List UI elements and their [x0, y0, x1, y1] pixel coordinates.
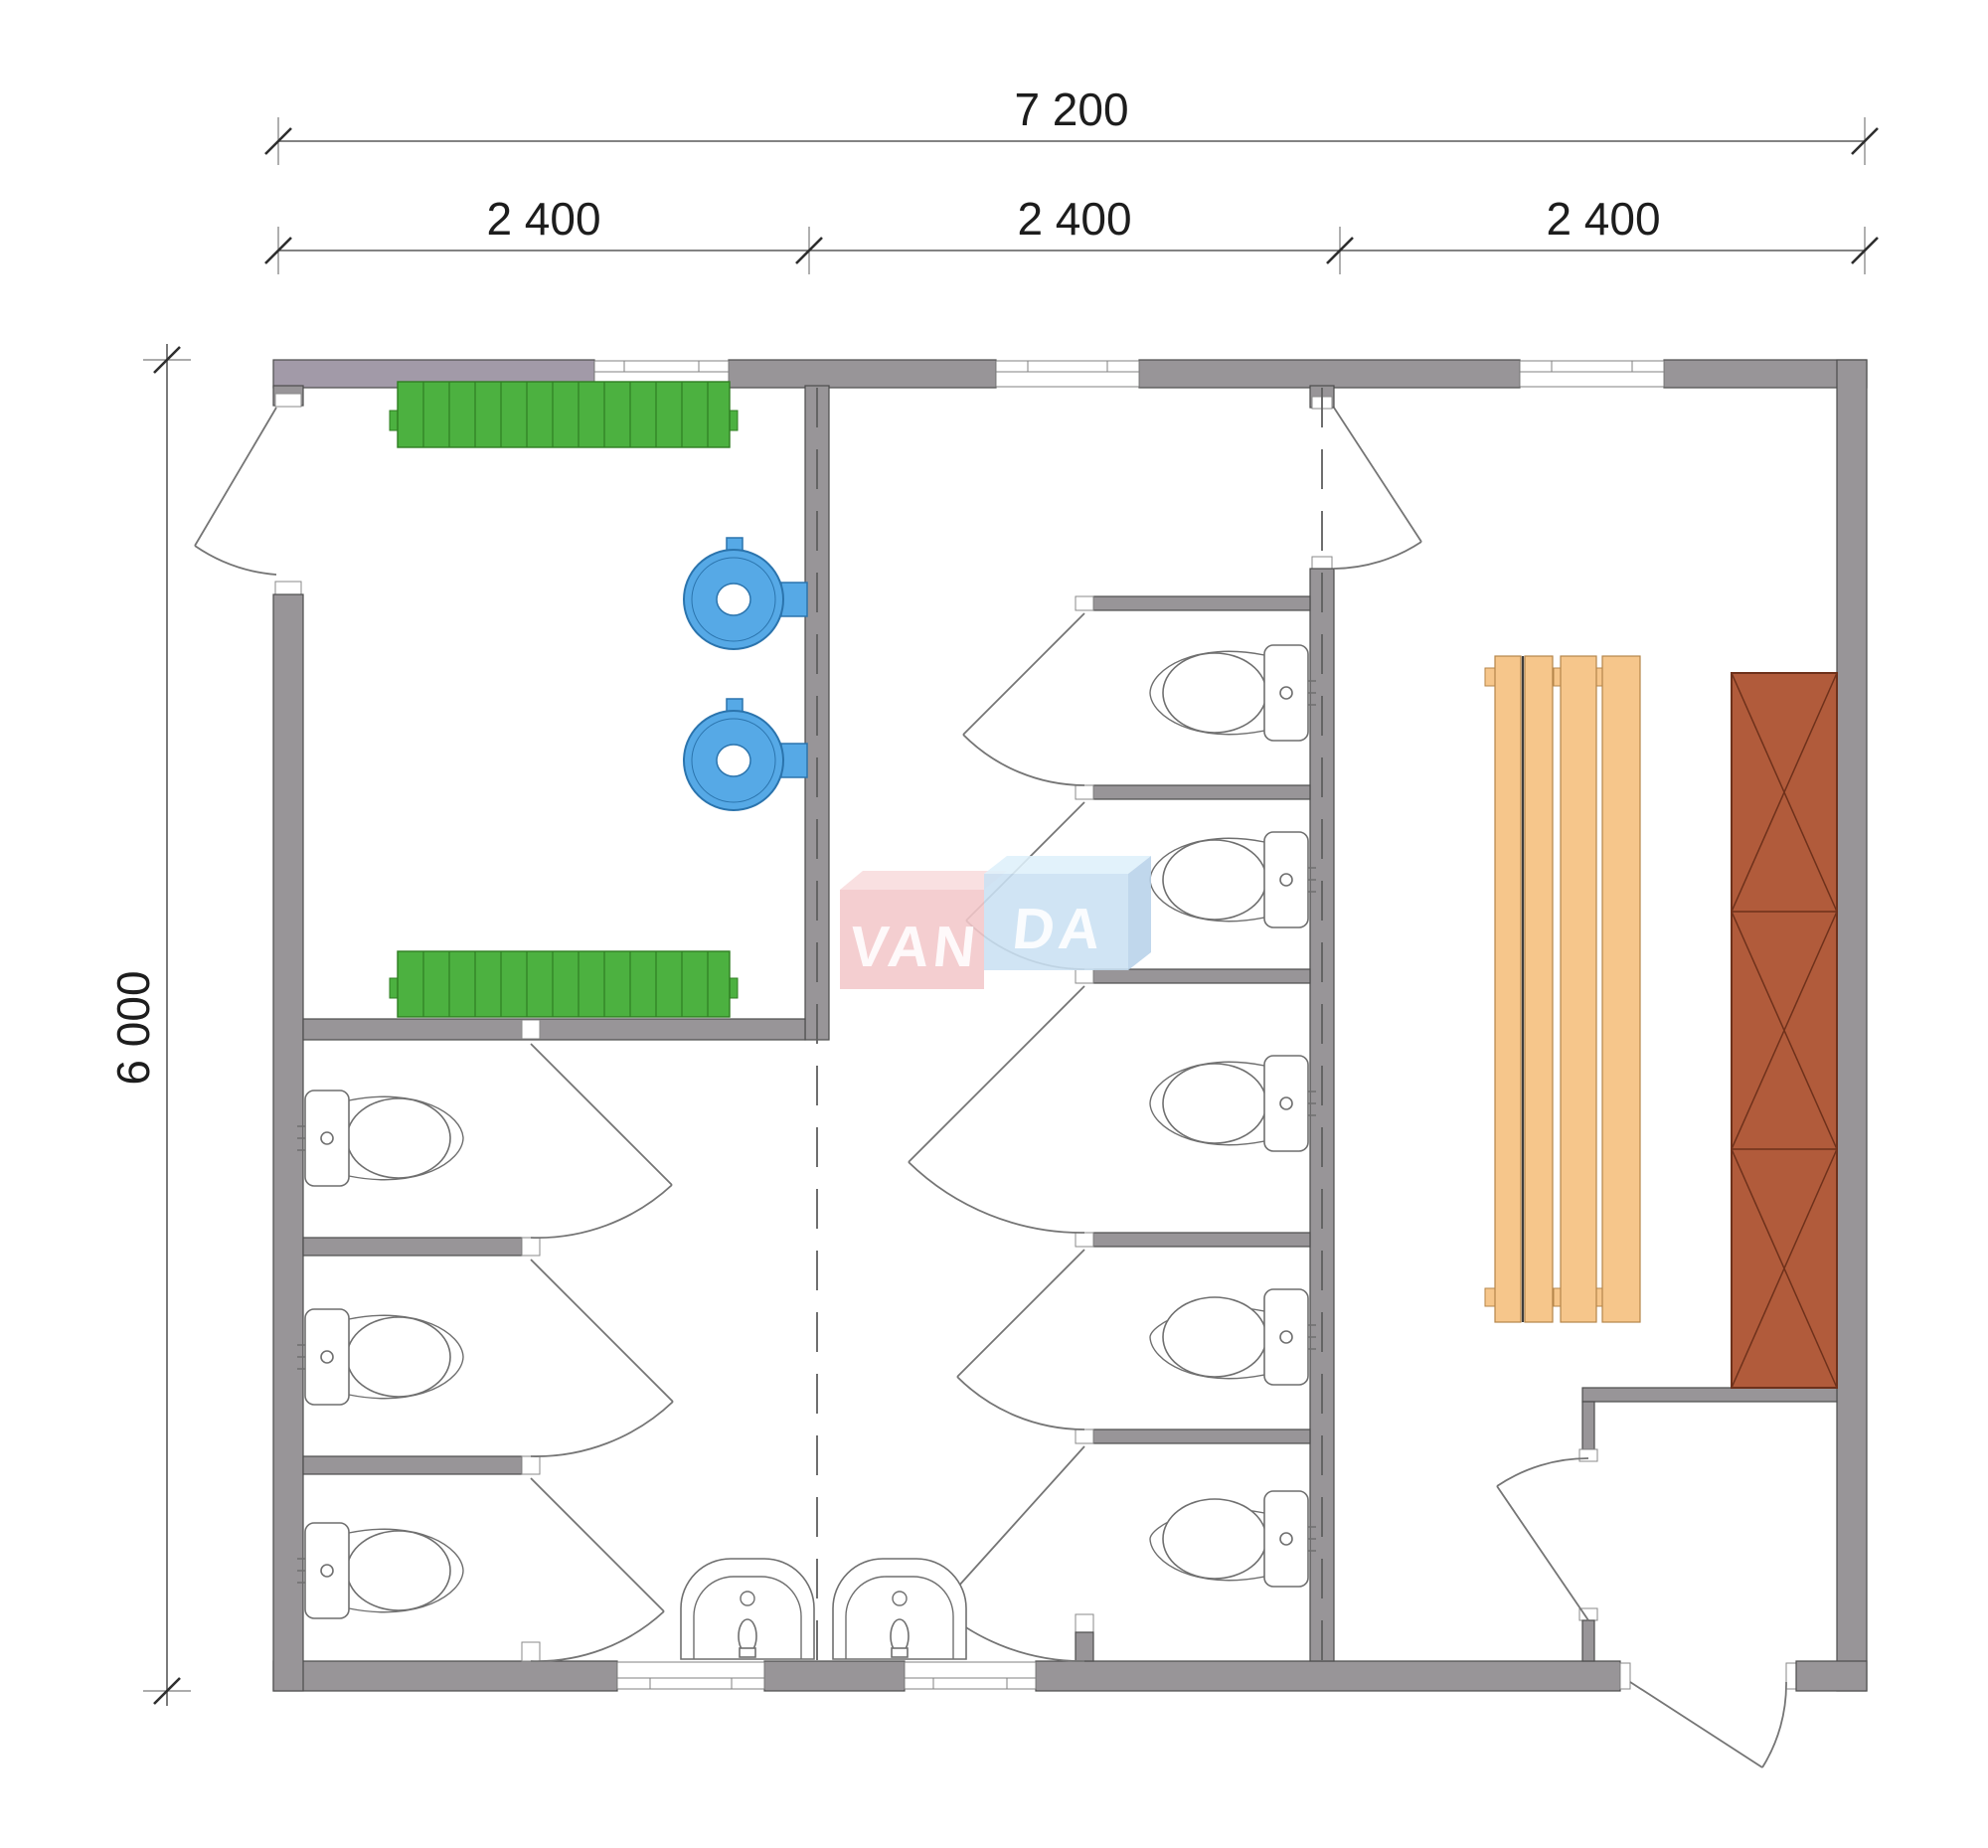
logo-blue-side-face [1128, 856, 1151, 970]
locker-cabinet [1732, 673, 1837, 1388]
stall-jamb [1076, 1233, 1093, 1247]
sink [833, 1559, 966, 1659]
door-vestibule [1497, 1458, 1588, 1620]
logo-text-left: VAN [847, 915, 983, 979]
window-top-right [1520, 361, 1664, 387]
stall-wall-stub [1076, 1632, 1093, 1661]
stall-wall [1093, 1233, 1310, 1247]
stall-door [957, 1250, 1084, 1429]
toilet [1150, 645, 1316, 741]
door-jamb [275, 582, 301, 594]
stall-door [531, 1260, 673, 1456]
door-jamb [275, 394, 301, 407]
stall-jamb [522, 1020, 540, 1039]
stall-jamb [522, 1238, 540, 1256]
stall-wall [1093, 785, 1310, 799]
stall-wall [303, 1238, 522, 1256]
dimension-label-total-width: 7 200 [1014, 84, 1128, 135]
stall-jamb [522, 1642, 540, 1661]
bottom-wall-segment [1796, 1661, 1867, 1691]
water-heater [684, 538, 807, 649]
dimension-label-segment-2: 2 400 [1017, 193, 1131, 245]
stall-door [963, 613, 1084, 785]
entrance-door-left [195, 408, 276, 575]
stall-door [909, 986, 1084, 1233]
toilet [1150, 1289, 1316, 1385]
toilet [1150, 1491, 1316, 1587]
vestibule-wall [1582, 1620, 1594, 1661]
toilet [297, 1523, 463, 1618]
stall-jamb [522, 1456, 540, 1474]
window-bottom-middle [905, 1662, 1036, 1689]
wood-bench [1485, 656, 1640, 1322]
vestibule-wall [1582, 1388, 1837, 1402]
left-wc-stalls [297, 1091, 463, 1618]
water-heater [684, 699, 807, 810]
right-changing-room [1485, 656, 1837, 1388]
toilet [1150, 1056, 1316, 1151]
floor-plan-page: 7 200 2 400 2 400 2 400 6 000 [0, 0, 1988, 1848]
bottom-wall-segment [273, 1661, 617, 1691]
window-bottom-left [617, 1662, 764, 1689]
stall-wall [1093, 1429, 1310, 1443]
stall-jamb [1076, 596, 1093, 610]
left-changing-room [390, 382, 807, 1017]
dimension-label-segment-3: 2 400 [1546, 193, 1660, 245]
stall-jamb [1076, 1429, 1093, 1443]
door-jamb [1579, 1449, 1597, 1461]
stall-door [531, 1044, 672, 1238]
toilet [1150, 832, 1316, 927]
stall-jamb [1076, 969, 1093, 983]
vestibule-wall [1582, 1402, 1594, 1449]
door-jamb [1786, 1663, 1796, 1689]
top-wall-segment [1139, 360, 1520, 388]
stall-wall [1093, 596, 1310, 610]
green-bench-top [390, 382, 738, 447]
bottom-wall-segment [1036, 1661, 1620, 1691]
logo-blue-top-face [984, 856, 1151, 874]
toilet [297, 1091, 463, 1186]
left-wall-segment [273, 594, 303, 1691]
door-jamb [1312, 557, 1332, 569]
sink [681, 1559, 814, 1659]
stall-jamb [1076, 785, 1093, 799]
stall-door [531, 1478, 664, 1661]
bottom-wall-segment [764, 1661, 905, 1691]
door-jamb [1620, 1663, 1630, 1689]
stall-wall [303, 1456, 522, 1474]
logo-text-right: DA [1010, 897, 1108, 961]
toilet [297, 1309, 463, 1405]
door-right-room [1334, 408, 1421, 569]
top-wall-segment [729, 360, 996, 388]
stall-wall [1093, 969, 1310, 983]
stall-jamb [1076, 1614, 1093, 1632]
dimension-label-total-height: 6 000 [107, 970, 159, 1085]
brand-watermark: VAN DA [840, 856, 1151, 989]
dimension-label-segment-1: 2 400 [486, 193, 600, 245]
left-room-partition [303, 1019, 805, 1040]
floor-plan-drawing: 7 200 2 400 2 400 2 400 6 000 [0, 0, 1988, 1848]
green-bench-bottom [390, 951, 738, 1017]
entrance-door-bottom-right [1630, 1682, 1786, 1767]
window-top-middle [996, 361, 1139, 387]
sinks [681, 1559, 966, 1659]
right-wall [1837, 360, 1867, 1691]
logo-pink-top-face [840, 871, 1007, 890]
